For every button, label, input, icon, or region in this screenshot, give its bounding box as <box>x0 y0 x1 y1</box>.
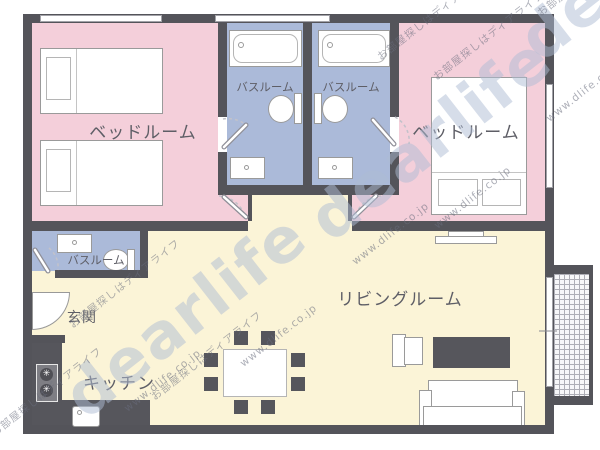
door-leaf-face <box>224 197 246 217</box>
floor-plan: ✳ ✳ <box>0 0 600 450</box>
kitchen-label: キッチン <box>79 369 159 394</box>
door-leaf-face <box>224 125 246 147</box>
bedroom-right-label: ベッドルーム <box>406 118 526 143</box>
bathroom-small-label: バスルーム <box>58 252 134 268</box>
bathroom-left-label: バスルーム <box>227 79 303 95</box>
bedroom-left-label: ベッドルーム <box>83 118 203 143</box>
door-leaf-face <box>354 196 376 217</box>
door-leaf-face <box>373 120 394 144</box>
door-leaf-face <box>35 250 48 271</box>
living-room-label: リビングルーム <box>330 285 470 310</box>
bathroom-right-label: バスルーム <box>312 79 390 95</box>
door-swing-arc <box>49 248 58 270</box>
entrance-label: 玄関 <box>60 307 104 327</box>
door-swing-arc <box>223 119 246 125</box>
